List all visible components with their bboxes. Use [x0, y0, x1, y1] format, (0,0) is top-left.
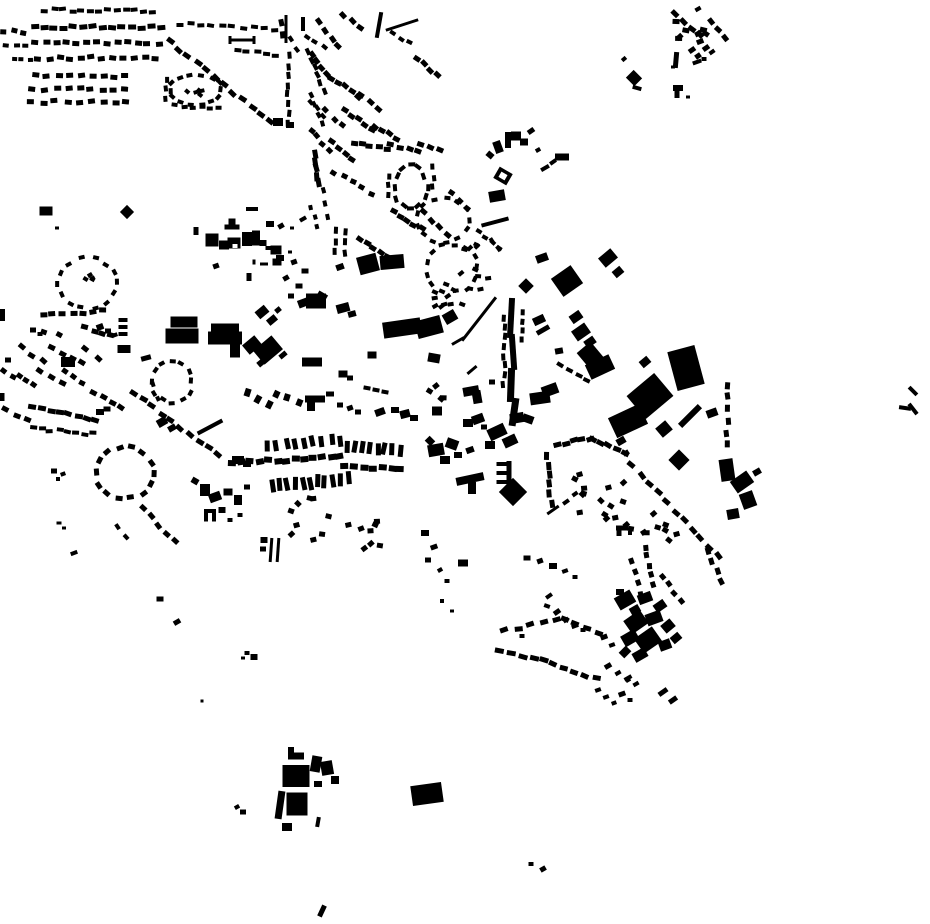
building: [138, 26, 146, 31]
building: [410, 782, 443, 806]
building: [169, 88, 173, 94]
building: [101, 73, 108, 78]
building: [55, 227, 59, 230]
building: [468, 482, 476, 494]
building: [28, 58, 33, 62]
building: [374, 519, 380, 524]
building: [66, 56, 73, 62]
building: [549, 563, 557, 569]
building: [78, 56, 85, 61]
building: [702, 57, 707, 61]
building: [28, 86, 36, 92]
building: [338, 473, 343, 486]
building: [261, 26, 268, 30]
building: [251, 654, 258, 660]
building: [671, 66, 675, 69]
building: [360, 465, 368, 471]
building: [157, 597, 164, 602]
building: [40, 312, 47, 317]
building: [216, 106, 222, 110]
building: [320, 760, 334, 776]
building: [156, 41, 163, 47]
building: [171, 317, 198, 328]
building: [128, 24, 136, 29]
building: [238, 513, 243, 517]
building: [379, 464, 387, 471]
building: [251, 24, 258, 29]
building: [520, 319, 525, 325]
building: [376, 144, 383, 149]
building: [342, 249, 347, 256]
building: [454, 452, 462, 458]
building: [272, 54, 279, 58]
building: [546, 462, 552, 470]
building: [42, 73, 49, 79]
building: [208, 332, 242, 345]
building: [77, 85, 84, 90]
building: [386, 182, 391, 188]
building: [242, 232, 252, 246]
building: [121, 73, 128, 78]
building: [497, 462, 508, 466]
building: [171, 102, 177, 107]
building: [282, 458, 291, 465]
building: [75, 413, 84, 419]
building: [58, 311, 65, 316]
building: [369, 466, 377, 472]
building: [244, 485, 250, 490]
building: [46, 429, 53, 433]
building: [285, 90, 289, 97]
building: [447, 302, 454, 307]
building: [391, 407, 399, 413]
building: [119, 325, 128, 329]
building: [260, 240, 267, 246]
building: [188, 103, 194, 107]
building: [194, 227, 199, 235]
building: [337, 403, 343, 408]
building: [426, 184, 430, 191]
building: [151, 470, 156, 477]
building: [280, 31, 286, 38]
building: [515, 626, 523, 632]
building: [497, 480, 508, 484]
building: [78, 72, 86, 78]
building: [723, 430, 729, 438]
building: [170, 359, 176, 363]
building: [104, 7, 111, 12]
building: [30, 328, 36, 333]
building: [157, 25, 165, 31]
building: [505, 132, 511, 148]
building: [302, 358, 322, 367]
building: [225, 225, 240, 230]
building: [228, 24, 235, 29]
building: [115, 496, 122, 502]
building: [440, 456, 450, 464]
building: [46, 56, 54, 62]
building: [387, 173, 391, 179]
building: [351, 141, 359, 147]
building: [52, 6, 59, 11]
building: [547, 470, 553, 479]
building: [79, 311, 86, 317]
building: [544, 452, 549, 460]
building: [14, 43, 20, 47]
figure-ground-map: [0, 0, 930, 924]
building: [261, 537, 268, 543]
building: [430, 183, 434, 189]
building: [201, 700, 204, 703]
building: [265, 440, 270, 451]
building: [521, 309, 525, 315]
building: [254, 49, 261, 53]
building: [40, 101, 47, 106]
building: [101, 100, 108, 105]
building: [57, 54, 65, 60]
building: [143, 41, 150, 46]
building: [334, 238, 338, 245]
building: [71, 311, 78, 316]
building: [467, 217, 471, 223]
building: [725, 440, 730, 447]
building: [576, 510, 583, 516]
building: [340, 463, 348, 469]
building: [83, 40, 90, 45]
building: [647, 563, 652, 569]
building: [204, 509, 216, 513]
building: [122, 99, 129, 105]
building: [520, 139, 528, 146]
building: [253, 36, 256, 44]
building: [181, 105, 187, 110]
building: [108, 25, 116, 31]
building: [197, 23, 204, 27]
building: [686, 96, 690, 99]
building: [546, 489, 552, 497]
building: [65, 99, 72, 105]
building: [386, 192, 390, 198]
building: [326, 392, 334, 397]
building: [450, 610, 454, 613]
building: [287, 52, 292, 59]
building: [581, 485, 587, 491]
building: [725, 405, 730, 412]
building: [234, 495, 242, 505]
building: [87, 9, 94, 13]
building: [165, 77, 169, 83]
building: [62, 527, 66, 530]
building: [288, 747, 294, 753]
building: [228, 518, 233, 522]
building: [485, 276, 491, 281]
building: [218, 86, 223, 92]
building: [41, 87, 49, 93]
building: [40, 207, 53, 216]
building: [229, 36, 232, 44]
building: [675, 36, 682, 41]
building: [725, 392, 731, 400]
building: [88, 98, 96, 104]
building: [72, 430, 79, 434]
building: [334, 227, 338, 234]
building: [315, 474, 320, 487]
building: [628, 526, 635, 532]
building: [224, 489, 233, 496]
building: [396, 466, 404, 472]
building: [219, 23, 226, 27]
building: [286, 120, 290, 127]
building: [51, 469, 57, 474]
building: [119, 332, 128, 336]
building: [41, 25, 49, 30]
building: [503, 324, 507, 331]
building: [333, 248, 337, 255]
building: [507, 368, 515, 402]
building: [725, 382, 730, 389]
building: [189, 377, 193, 383]
building: [264, 456, 272, 463]
building: [30, 425, 37, 430]
building: [62, 39, 69, 45]
building: [290, 227, 294, 230]
building: [407, 206, 414, 210]
building: [331, 776, 339, 784]
building: [118, 345, 131, 353]
building: [89, 431, 96, 435]
building: [638, 591, 644, 598]
building: [121, 86, 128, 91]
building: [115, 279, 119, 285]
building: [207, 107, 213, 111]
building: [50, 98, 57, 104]
building: [410, 415, 418, 421]
building: [94, 468, 100, 475]
building: [140, 9, 147, 14]
building: [176, 23, 183, 27]
building: [228, 460, 236, 466]
building: [240, 810, 246, 815]
building: [54, 86, 61, 91]
building: [314, 781, 322, 787]
building: [524, 556, 531, 561]
building: [245, 458, 253, 465]
building: [307, 399, 315, 411]
building: [27, 99, 34, 104]
building: [22, 44, 28, 48]
building: [206, 234, 219, 247]
building: [292, 455, 300, 461]
building: [130, 7, 137, 12]
building: [271, 246, 282, 255]
building: [151, 56, 158, 61]
building: [497, 471, 508, 475]
building: [199, 102, 205, 106]
building: [452, 243, 458, 247]
building: [119, 56, 126, 61]
building: [3, 43, 9, 48]
building: [319, 531, 326, 537]
building: [347, 376, 353, 381]
building: [367, 528, 373, 533]
building: [34, 56, 41, 62]
building: [286, 83, 290, 90]
building: [76, 100, 83, 106]
building: [266, 246, 271, 250]
building: [166, 329, 199, 344]
building: [72, 41, 79, 46]
building: [343, 238, 347, 245]
building: [444, 196, 450, 201]
building: [502, 315, 506, 322]
building: [489, 380, 495, 385]
building: [234, 48, 241, 53]
building: [103, 41, 110, 47]
building: [421, 530, 429, 536]
building: [149, 10, 156, 14]
building: [271, 28, 278, 32]
building: [241, 657, 245, 660]
building: [485, 441, 495, 449]
building: [150, 379, 154, 385]
building: [266, 221, 274, 227]
building: [59, 26, 67, 31]
building: [100, 88, 107, 93]
building: [273, 118, 283, 126]
building: [117, 24, 125, 29]
building: [252, 231, 260, 246]
building: [643, 545, 649, 551]
building: [5, 358, 11, 363]
building: [345, 441, 350, 453]
building: [98, 56, 106, 62]
building: [502, 343, 507, 350]
building: [260, 263, 268, 266]
building: [113, 100, 120, 105]
building: [310, 496, 317, 502]
building: [70, 10, 77, 14]
building: [458, 560, 468, 567]
building: [628, 531, 632, 535]
building: [286, 100, 290, 107]
building: [329, 434, 335, 445]
building: [520, 634, 525, 638]
building: [247, 273, 252, 281]
building: [109, 55, 117, 61]
building: [365, 143, 372, 149]
building: [93, 39, 100, 44]
building: [286, 63, 291, 70]
building: [31, 24, 39, 29]
building: [32, 72, 40, 78]
building: [343, 228, 348, 235]
building: [359, 141, 367, 147]
building: [503, 361, 508, 368]
building: [643, 552, 649, 559]
building: [142, 55, 149, 60]
map-background: [0, 0, 930, 924]
building: [53, 40, 60, 45]
building: [0, 393, 5, 401]
building: [260, 547, 266, 552]
building: [0, 309, 5, 321]
building: [377, 543, 384, 549]
building: [463, 419, 473, 427]
building: [287, 793, 308, 816]
building: [726, 508, 740, 520]
building: [229, 39, 255, 42]
building: [246, 207, 258, 211]
building: [104, 407, 111, 412]
building: [99, 307, 106, 312]
building: [501, 353, 505, 360]
building: [57, 522, 62, 525]
building: [41, 9, 48, 13]
building: [511, 132, 521, 141]
building: [237, 458, 246, 465]
building: [440, 599, 444, 603]
building: [555, 154, 569, 161]
building: [389, 443, 394, 455]
building: [163, 96, 167, 102]
building: [503, 333, 508, 340]
building: [440, 395, 446, 400]
building: [726, 418, 731, 425]
building: [425, 558, 431, 563]
building: [368, 352, 377, 359]
building: [283, 765, 310, 787]
building: [672, 19, 679, 24]
building: [430, 163, 434, 169]
building: [293, 477, 298, 490]
building: [219, 507, 226, 513]
building: [276, 255, 284, 261]
building: [546, 479, 552, 488]
building: [59, 6, 66, 11]
building: [211, 324, 239, 333]
building: [432, 407, 442, 416]
building: [350, 463, 358, 470]
building: [253, 260, 256, 265]
building: [147, 23, 155, 28]
building: [432, 175, 437, 181]
building: [0, 29, 6, 34]
building: [300, 456, 309, 463]
building: [520, 336, 524, 342]
building: [66, 73, 73, 78]
building: [79, 24, 87, 30]
building: [43, 40, 50, 45]
building: [287, 110, 292, 117]
building: [18, 57, 23, 61]
building: [301, 17, 305, 31]
building: [77, 8, 84, 12]
building: [308, 455, 316, 461]
building: [379, 254, 404, 270]
building: [355, 410, 361, 415]
building: [115, 40, 122, 45]
building: [339, 371, 348, 378]
building: [65, 85, 72, 91]
building: [282, 823, 292, 831]
building: [296, 284, 303, 289]
building: [31, 40, 38, 46]
building: [675, 88, 680, 98]
building: [86, 86, 93, 92]
building: [200, 484, 210, 496]
building: [135, 40, 142, 46]
building: [616, 589, 624, 595]
